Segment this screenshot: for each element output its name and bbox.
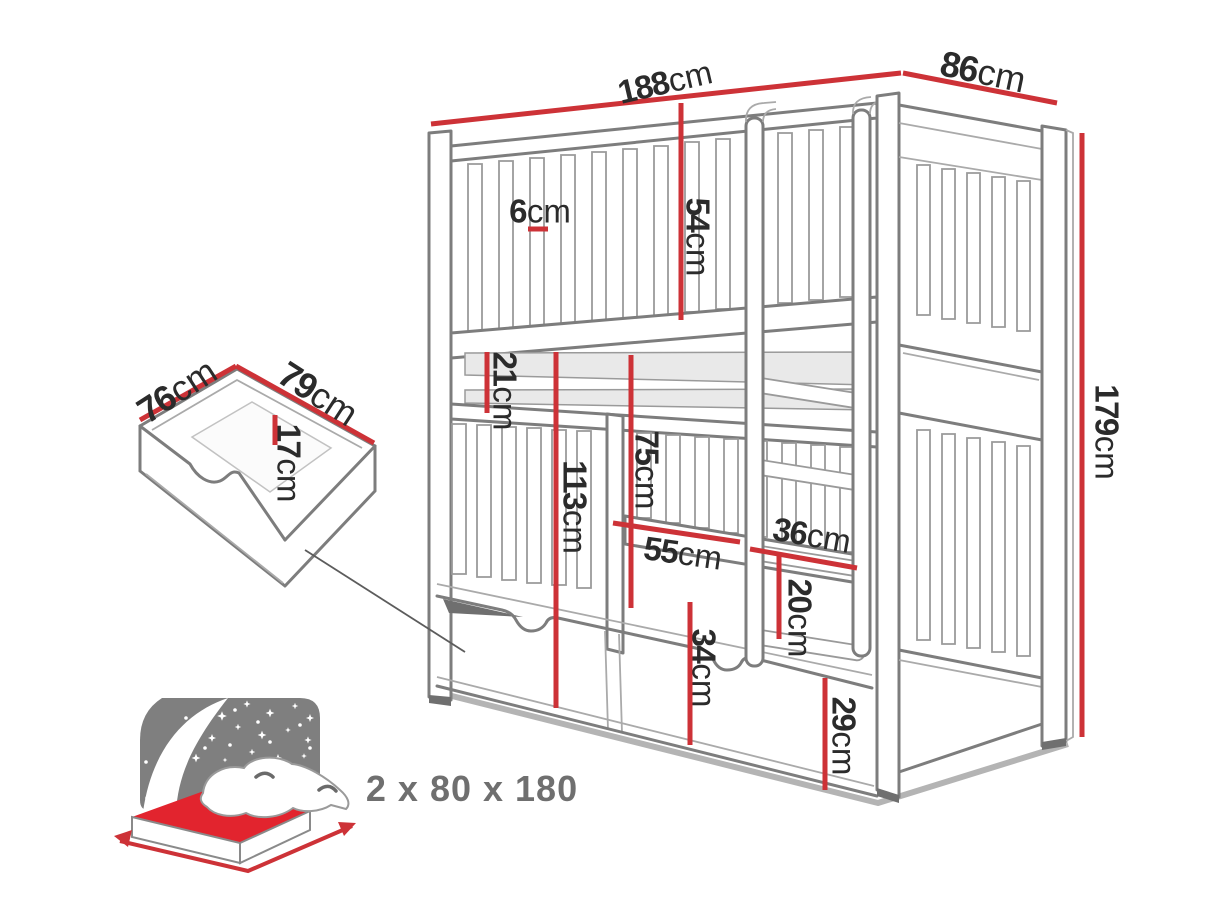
ladder-left-rail bbox=[746, 118, 763, 666]
mattress-size-icon bbox=[114, 698, 356, 871]
dim-label-20: 20cm bbox=[784, 579, 817, 658]
drawer-detail-drawing bbox=[140, 369, 465, 652]
dim-label-54: 54cm bbox=[682, 198, 715, 277]
front-right-post bbox=[877, 93, 899, 803]
dim-label-34: 34cm bbox=[688, 629, 721, 708]
bed-end-face bbox=[899, 105, 1073, 772]
dim-label-75: 75cm bbox=[631, 431, 664, 510]
mattress-size-note: 2 x 80 x 180 bbox=[366, 768, 578, 810]
dim-label-17: 17cm bbox=[273, 424, 306, 503]
diagram-artwork bbox=[0, 0, 1230, 923]
dim-label-6: 6cm bbox=[509, 195, 571, 228]
dim-label-179: 179cm bbox=[1091, 384, 1124, 480]
ladder-right-rail bbox=[853, 110, 870, 656]
dim-label-113: 113cm bbox=[559, 460, 592, 554]
dim-label-21: 21cm bbox=[489, 352, 522, 431]
dim-label-29: 29cm bbox=[828, 697, 861, 776]
diagram-canvas: 188cm 86cm 179cm 6cm 54cm 21cm 113cm 75c… bbox=[0, 0, 1230, 923]
